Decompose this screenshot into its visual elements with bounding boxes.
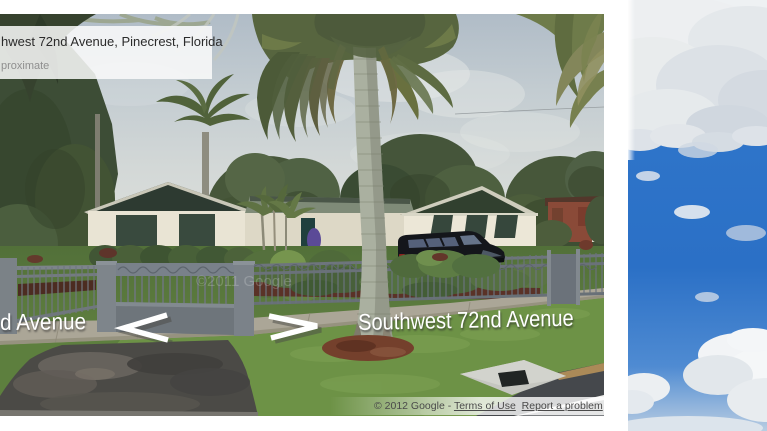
svg-text:©2011 Google: ©2011 Google [196, 273, 292, 290]
